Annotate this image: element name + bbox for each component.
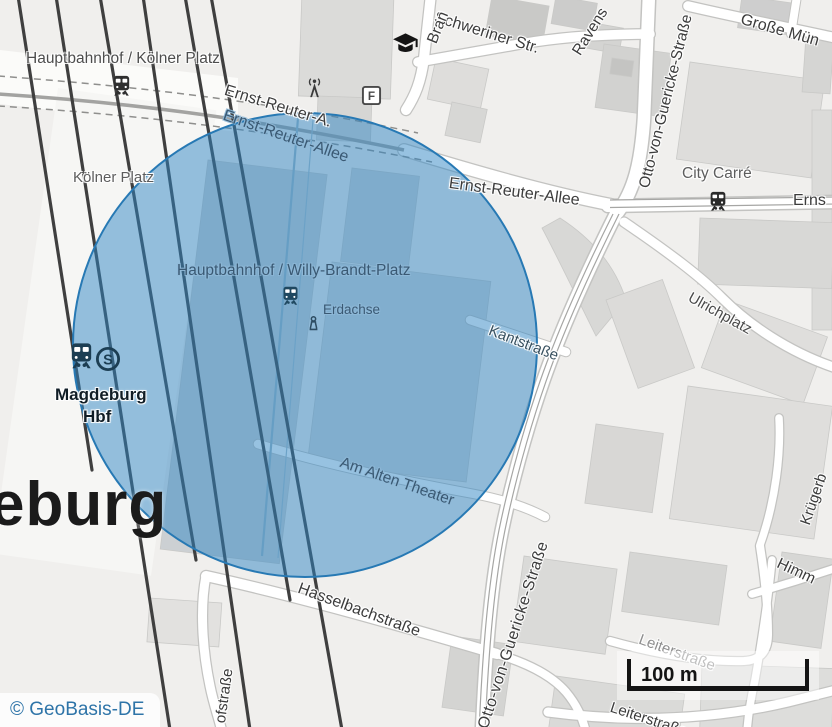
station-label-koelner-platz: Hauptbahnhof / Kölner Platz — [26, 51, 220, 67]
place-label-city-carre: City Carré — [682, 166, 752, 182]
scale-label: 100 m — [641, 664, 698, 687]
train-icon — [67, 341, 96, 370]
station-label-willy-brandt-platz: Hauptbahnhof / Willy-Brandt-Platz — [177, 263, 410, 279]
street-label-ernst-reuter-allee-edge: Erns — [793, 193, 826, 209]
map-canvas[interactable]: S F — [0, 0, 832, 727]
train-icon — [280, 285, 301, 306]
tram-icon — [707, 190, 729, 212]
map-attribution-link[interactable]: © GeoBasis-DE — [0, 693, 160, 727]
fountain-icon — [361, 85, 382, 106]
station-label-magdeburg-hbf-line2: Hbf — [83, 408, 111, 425]
train-icon — [110, 74, 133, 97]
monument-icon — [304, 314, 323, 333]
map-geometry: S F — [0, 0, 832, 727]
graduation-cap-icon — [392, 30, 419, 57]
place-label-erdachse: Erdachse — [323, 303, 380, 317]
station-label-magdeburg-hbf-line1: Magdeburg — [55, 386, 147, 403]
sbahn-icon — [95, 346, 121, 372]
place-label-koelner-platz: Kölner Platz — [73, 170, 154, 185]
antenna-icon — [303, 76, 326, 99]
city-label-magdeburg: eburg — [0, 474, 167, 536]
